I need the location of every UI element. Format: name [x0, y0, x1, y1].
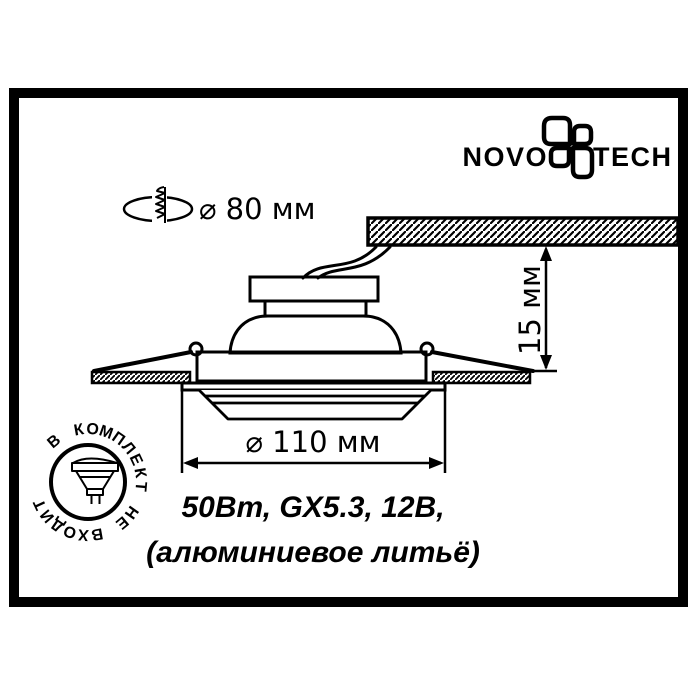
logo-text-left: NOVO: [462, 142, 548, 172]
stamp-ring-char: Т: [131, 481, 149, 492]
product-drawing: NOVO TECH ⌀ 80 мм: [0, 0, 700, 700]
depth-dimension-label: 15 мм: [513, 265, 547, 355]
trim-cone: [199, 390, 431, 419]
ceiling-section: [368, 218, 678, 245]
ceiling-cut-left: [92, 372, 190, 383]
diameter-dimension-label: ⌀ 110 мм: [245, 425, 380, 459]
spec-line-1: 50Вт, GX5.3, 12В,: [181, 491, 444, 524]
spec-line-2: (алюминиевое литьё): [146, 536, 480, 569]
ceiling-cut-right: [433, 372, 530, 383]
cutout-diameter-label: ⌀ 80 мм: [199, 192, 316, 226]
logo-text-right: TECH: [593, 142, 673, 172]
